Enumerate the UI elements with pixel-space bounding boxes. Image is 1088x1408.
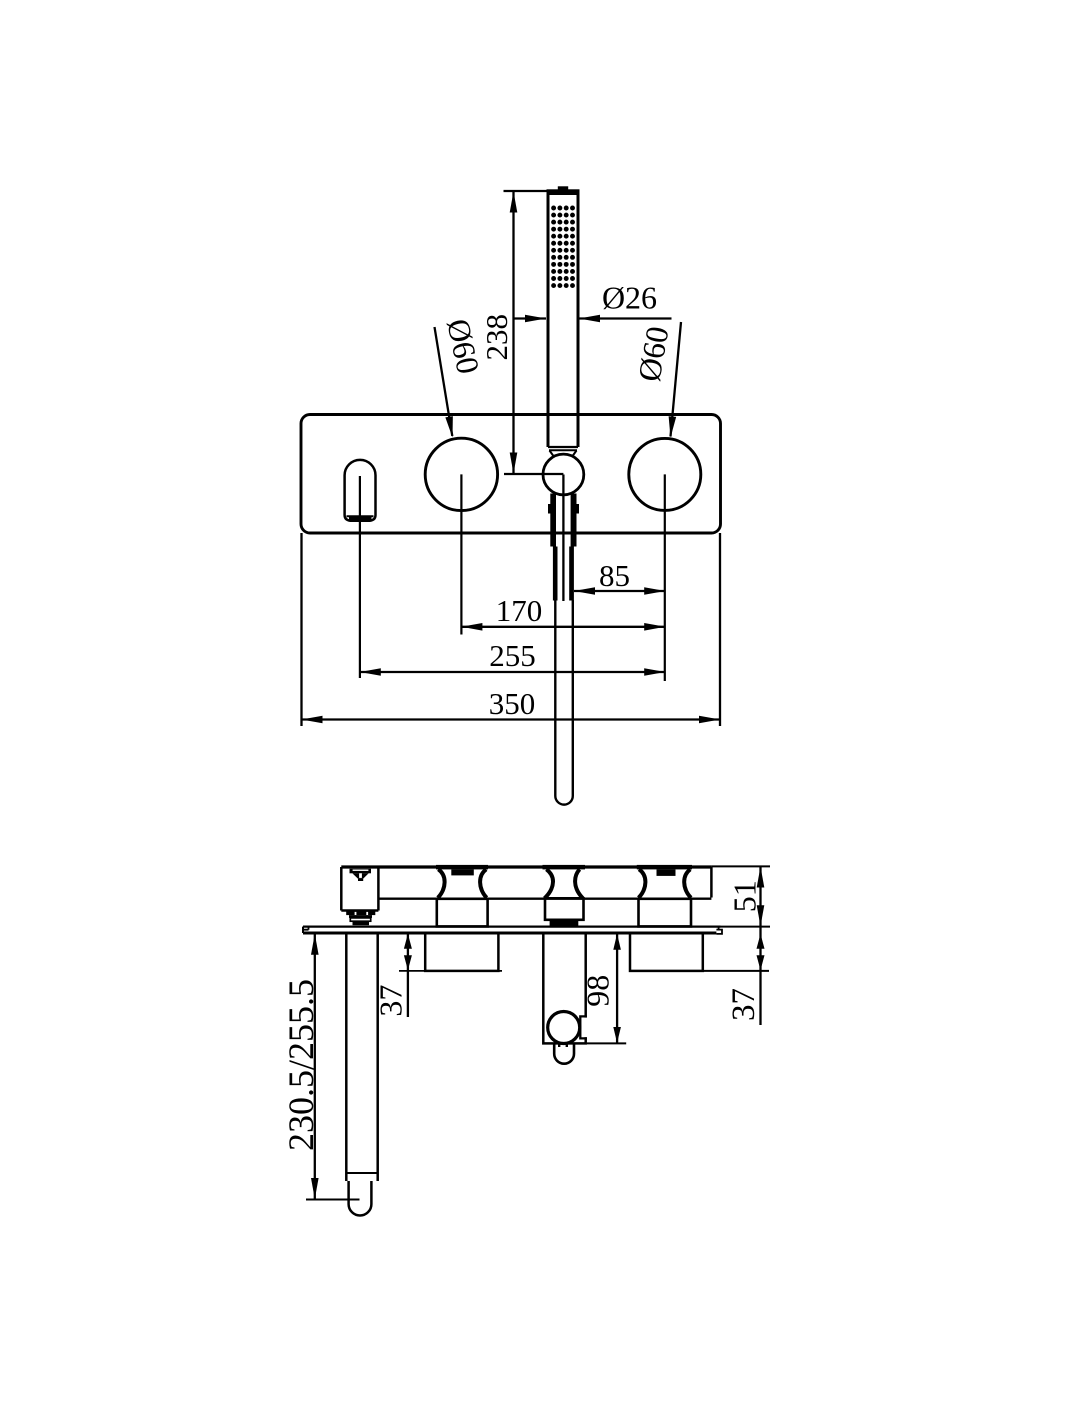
svg-text:51: 51: [727, 880, 763, 912]
svg-text:230.5/255.5: 230.5/255.5: [281, 979, 321, 1151]
svg-text:Ø60: Ø60: [631, 324, 676, 385]
svg-text:170: 170: [496, 593, 543, 628]
svg-text:37: 37: [726, 988, 762, 1021]
svg-text:350: 350: [489, 686, 536, 721]
svg-text:Ø26: Ø26: [602, 280, 657, 316]
svg-text:37: 37: [373, 985, 409, 1017]
svg-text:98: 98: [580, 975, 616, 1007]
svg-text:85: 85: [599, 558, 630, 593]
svg-text:255: 255: [489, 638, 536, 673]
